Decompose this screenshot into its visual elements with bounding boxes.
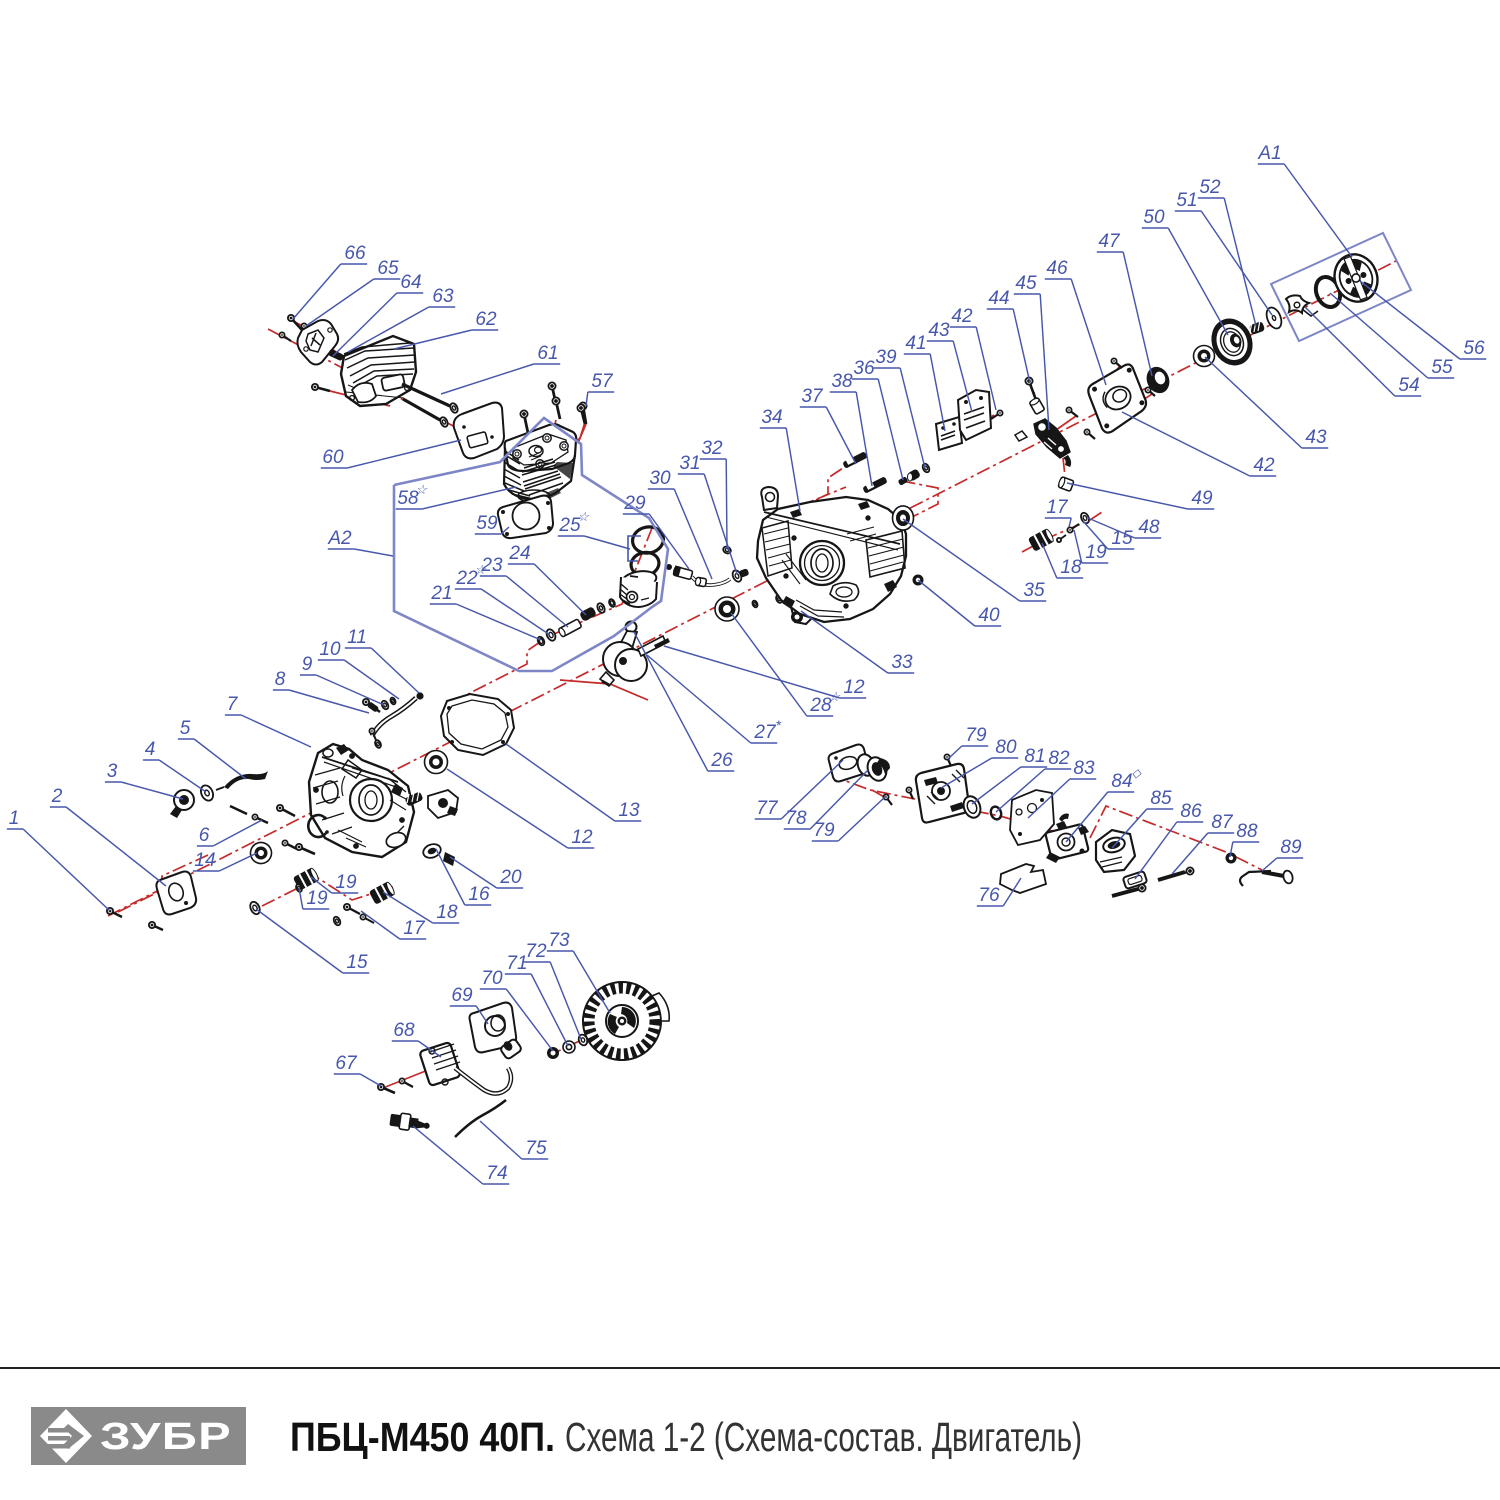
- svg-text:87: 87: [1211, 812, 1234, 833]
- svg-text:55: 55: [1431, 357, 1453, 378]
- svg-text:44: 44: [988, 288, 1009, 309]
- svg-text:65: 65: [377, 258, 399, 279]
- svg-text:15: 15: [346, 952, 368, 973]
- svg-text:47: 47: [1098, 231, 1121, 252]
- svg-text:86: 86: [1180, 801, 1202, 822]
- svg-text:67: 67: [335, 1053, 358, 1074]
- svg-text:54: 54: [1398, 375, 1419, 396]
- svg-text:12: 12: [571, 827, 593, 848]
- svg-text:43: 43: [1305, 427, 1327, 448]
- svg-text:89: 89: [1280, 837, 1302, 858]
- svg-text:1: 1: [9, 808, 20, 829]
- svg-text:71: 71: [506, 953, 527, 974]
- svg-text:☆: ☆: [577, 509, 590, 524]
- svg-text:78: 78: [785, 808, 807, 829]
- svg-text:77: 77: [756, 798, 779, 819]
- svg-text:24: 24: [508, 543, 530, 564]
- svg-text:57: 57: [591, 371, 614, 392]
- svg-text:69: 69: [451, 985, 473, 1006]
- svg-text:18: 18: [1060, 557, 1082, 578]
- svg-text:11: 11: [347, 627, 367, 648]
- svg-text:4: 4: [145, 739, 156, 760]
- svg-text:19: 19: [1085, 542, 1107, 563]
- svg-text:73: 73: [548, 930, 570, 951]
- svg-text:10: 10: [319, 639, 341, 660]
- svg-text:5: 5: [180, 718, 191, 739]
- svg-text:32: 32: [701, 438, 723, 459]
- svg-text:51: 51: [1176, 190, 1197, 211]
- svg-text:Схема 1-2 (Схема-состав. Двига: Схема 1-2 (Схема-состав. Двигатель): [565, 1414, 1082, 1460]
- svg-text:15: 15: [1111, 528, 1133, 549]
- svg-text:23: 23: [480, 555, 503, 576]
- svg-text:66: 66: [344, 243, 366, 264]
- svg-text:6: 6: [199, 825, 210, 846]
- svg-text:21: 21: [430, 583, 452, 604]
- svg-text:17: 17: [403, 918, 426, 939]
- svg-text:79: 79: [813, 820, 835, 841]
- svg-text:30: 30: [649, 468, 671, 489]
- svg-text:12: 12: [843, 677, 865, 698]
- svg-text:83: 83: [1073, 758, 1095, 779]
- svg-text:38: 38: [831, 371, 853, 392]
- svg-text:72: 72: [525, 941, 547, 962]
- svg-text:36: 36: [853, 358, 875, 379]
- svg-text:48: 48: [1138, 517, 1160, 538]
- svg-text:84: 84: [1111, 771, 1132, 792]
- svg-text:76: 76: [978, 885, 1000, 906]
- svg-text:7: 7: [227, 694, 239, 715]
- svg-text:63: 63: [432, 286, 454, 307]
- svg-text:3: 3: [107, 761, 118, 782]
- svg-text:2: 2: [51, 786, 63, 807]
- svg-text:40: 40: [978, 605, 1000, 626]
- svg-text:33: 33: [891, 652, 913, 673]
- svg-text:56: 56: [1463, 338, 1485, 359]
- svg-text:68: 68: [393, 1020, 415, 1041]
- svg-text:35: 35: [1023, 580, 1045, 601]
- svg-text:79: 79: [965, 725, 987, 746]
- svg-text:ПБЦ-М450 40П.: ПБЦ-М450 40П.: [290, 1414, 555, 1460]
- svg-text:46: 46: [1046, 258, 1068, 279]
- svg-text:31: 31: [679, 453, 700, 474]
- svg-text:19: 19: [335, 872, 357, 893]
- svg-text:27: 27: [753, 722, 777, 743]
- svg-text:75: 75: [525, 1138, 547, 1159]
- svg-text:81: 81: [1024, 746, 1045, 767]
- svg-text:*: *: [775, 717, 781, 733]
- svg-text:A2: A2: [327, 528, 352, 549]
- svg-text:18: 18: [436, 902, 458, 923]
- svg-text:64: 64: [400, 272, 421, 293]
- svg-text:19: 19: [306, 888, 328, 909]
- svg-text:☆: ☆: [415, 482, 428, 497]
- svg-text:14: 14: [194, 850, 215, 871]
- svg-text:37: 37: [801, 386, 824, 407]
- svg-text:80: 80: [995, 737, 1017, 758]
- svg-text:74: 74: [486, 1163, 507, 1184]
- svg-text:16: 16: [468, 884, 490, 905]
- svg-text:13: 13: [618, 800, 640, 821]
- svg-text:82: 82: [1048, 748, 1070, 769]
- svg-text:45: 45: [1015, 273, 1037, 294]
- svg-text:41: 41: [905, 333, 926, 354]
- svg-text:20: 20: [499, 867, 522, 888]
- svg-text:50: 50: [1143, 207, 1165, 228]
- svg-text:◇: ◇: [1132, 766, 1142, 780]
- svg-text:A1: A1: [1257, 143, 1281, 164]
- svg-text:85: 85: [1150, 788, 1172, 809]
- svg-text:60: 60: [322, 447, 344, 468]
- svg-text:17: 17: [1046, 497, 1069, 518]
- svg-text:42: 42: [951, 306, 973, 327]
- svg-text:43: 43: [928, 320, 950, 341]
- svg-text:39: 39: [875, 347, 897, 368]
- svg-text:ЗУБР: ЗУБР: [100, 1416, 232, 1458]
- svg-text:42: 42: [1253, 455, 1275, 476]
- svg-text:8: 8: [275, 669, 286, 690]
- svg-text:9: 9: [302, 654, 313, 675]
- svg-text:59: 59: [476, 513, 498, 534]
- svg-text:70: 70: [481, 968, 503, 989]
- svg-text:26: 26: [710, 750, 733, 771]
- svg-text:62: 62: [475, 309, 497, 330]
- svg-text:34: 34: [761, 407, 782, 428]
- svg-text:49: 49: [1191, 488, 1213, 509]
- svg-text:29: 29: [623, 493, 646, 514]
- svg-text:52: 52: [1199, 177, 1221, 198]
- svg-text:61: 61: [537, 343, 558, 364]
- svg-text:88: 88: [1236, 821, 1258, 842]
